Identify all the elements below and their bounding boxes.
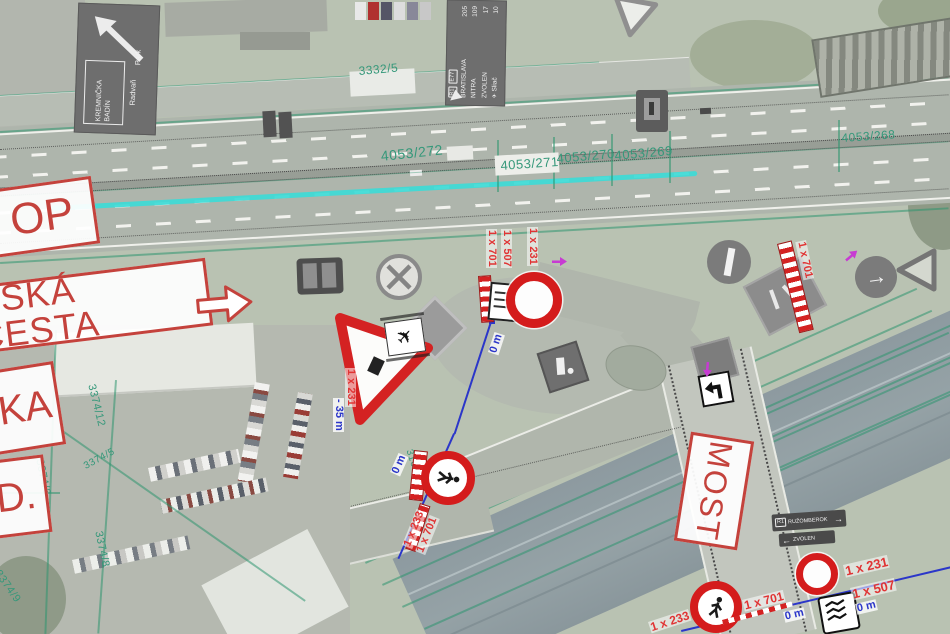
magenta-arrow-icon: [552, 256, 567, 267]
destination-name: Sliač: [492, 77, 499, 91]
destination-name: NITRA: [470, 78, 478, 98]
lane-direction-bar: ← ZVOLEN: [779, 530, 836, 547]
route-badges-row: R1 E77: [448, 6, 459, 98]
area-label-text: KA: [0, 384, 54, 432]
arrow-left-icon: ←: [782, 535, 792, 546]
quantity-label: 1 x 507: [850, 578, 897, 601]
destination-box: KREMNIČKA BADÍN: [83, 60, 125, 125]
existing-yield-sign: [893, 246, 939, 294]
pictogram-figure: [556, 357, 565, 375]
parked-car: [407, 2, 418, 20]
sign-pictogram: [644, 98, 660, 120]
pictogram-figure: [649, 102, 654, 115]
airport-row: ✈ Sliač: [491, 77, 500, 98]
arrow-right-icon: →: [834, 513, 844, 524]
parked-car: [394, 2, 405, 20]
destination-label: ZVOLEN: [793, 535, 815, 543]
trees-top-right: [690, 20, 820, 90]
no-entry-sign: [506, 272, 562, 328]
destination-row: ✈ Sliač 10: [491, 6, 501, 98]
sign-panel: [322, 262, 337, 287]
rotated-sign-content: R1 E77 BRATISLAVA 205 NITRA 109 ZVOLEN 1…: [445, 1, 505, 102]
road-panel: [447, 145, 474, 160]
airplane-icon: ✈: [392, 324, 418, 350]
sign-side-label: Radvaň: [128, 79, 138, 105]
lane-direction-bar: R1 RUŽOMBEROK →: [771, 509, 846, 531]
existing-two-panel-sign: [296, 257, 343, 295]
magenta-arrow-icon: [701, 362, 713, 378]
existing-bar-circle-sign: [707, 240, 751, 284]
quantity-label: 1 x 701: [486, 229, 497, 268]
airport-direction-sign: ✈: [384, 318, 426, 357]
quantity-label: 1 x 231: [527, 227, 538, 266]
parked-car: [355, 2, 366, 20]
no-pedestrians-sign: [421, 451, 475, 505]
sign-arrow-icon: [449, 89, 463, 102]
destination-row: ZVOLEN 17: [481, 6, 491, 98]
existing-sign-top-right: [636, 90, 668, 132]
street-label-text: OP: [7, 191, 76, 243]
local-direction-sign: Park KREMNIČKA BADÍN Radvaň: [74, 3, 160, 136]
parked-car: [381, 2, 392, 20]
destination-line: BADÍN: [104, 64, 113, 122]
destination-km: 109: [472, 6, 480, 17]
no-pedestrians-sign: [690, 581, 742, 633]
glyph-mark: [769, 289, 780, 309]
destination-label: RUŽOMBEROK: [788, 516, 828, 525]
arrow-right-icon: →: [863, 263, 888, 292]
destination-km: 205: [461, 6, 469, 17]
existing-panel-sign-pair: [278, 112, 292, 139]
no-entry-sign: [796, 553, 838, 595]
distance-label: - 35 m: [333, 398, 344, 432]
destination-row: NITRA 109: [470, 6, 480, 98]
route-badge: R1: [775, 518, 787, 528]
airplane-icon: ✈: [492, 93, 498, 98]
euro-route-badge: E77: [449, 70, 458, 84]
turn-arrow-icon: [700, 373, 732, 405]
cross-strokes: [384, 262, 414, 292]
quantity-label: 1 x 507: [501, 229, 512, 268]
distance-label: 0 m: [390, 453, 409, 477]
cadastral-tick: [838, 120, 840, 172]
pedestrian-icon: [433, 463, 463, 493]
direction-arrow-outline: [194, 281, 255, 328]
parked-car: [420, 2, 431, 20]
parked-car: [368, 2, 379, 20]
destination-km: 17: [482, 6, 490, 13]
end-of-prohibitions-sign: [376, 254, 422, 300]
building-top-2: [240, 32, 310, 50]
existing-warning-triangle-sign: [605, 0, 662, 44]
magenta-arrow-icon: [842, 246, 861, 264]
area-label-text: D.: [0, 475, 38, 520]
sign-side-label: Park: [133, 50, 143, 66]
quantity-label: 1 x 231: [345, 368, 356, 407]
existing-panel-sign-pair: [262, 111, 276, 138]
destination-row: BRATISLAVA 205: [460, 6, 470, 98]
pictogram-dot: [567, 367, 575, 375]
bridge-label-text: MOST: [690, 439, 737, 543]
distance-label: 0 m: [855, 599, 878, 614]
destination-km: 10: [493, 6, 501, 13]
destination-name: ZVOLEN: [481, 72, 490, 98]
white-bar: [723, 248, 735, 277]
highway-direction-sign: R1 E77 BRATISLAVA 205 NITRA 109 ZVOLEN 1…: [445, 0, 507, 107]
car-on-road: [700, 108, 711, 115]
area-label-partial-2: D.: [0, 454, 53, 539]
destination-line: KREMNIČKA: [95, 63, 104, 121]
sign-panel: [303, 263, 318, 288]
zigzag-lines-icon: [819, 594, 853, 628]
traffic-plan-map: 3332/5 4053/272 4053/271 4053/270 4053/2…: [0, 0, 950, 634]
quantity-label: 1 x 231: [843, 555, 890, 578]
